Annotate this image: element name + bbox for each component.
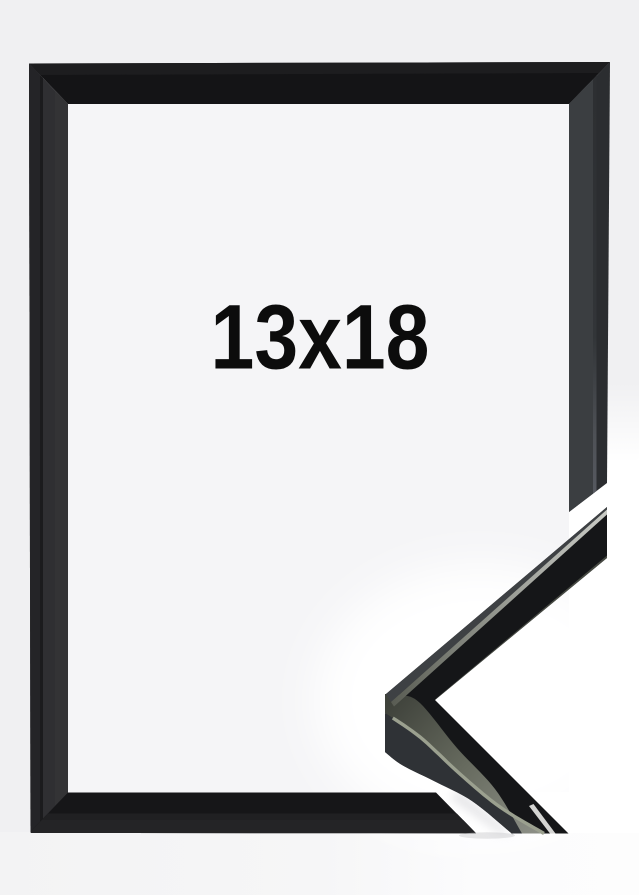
svg-text:13x18: 13x18: [211, 286, 430, 389]
